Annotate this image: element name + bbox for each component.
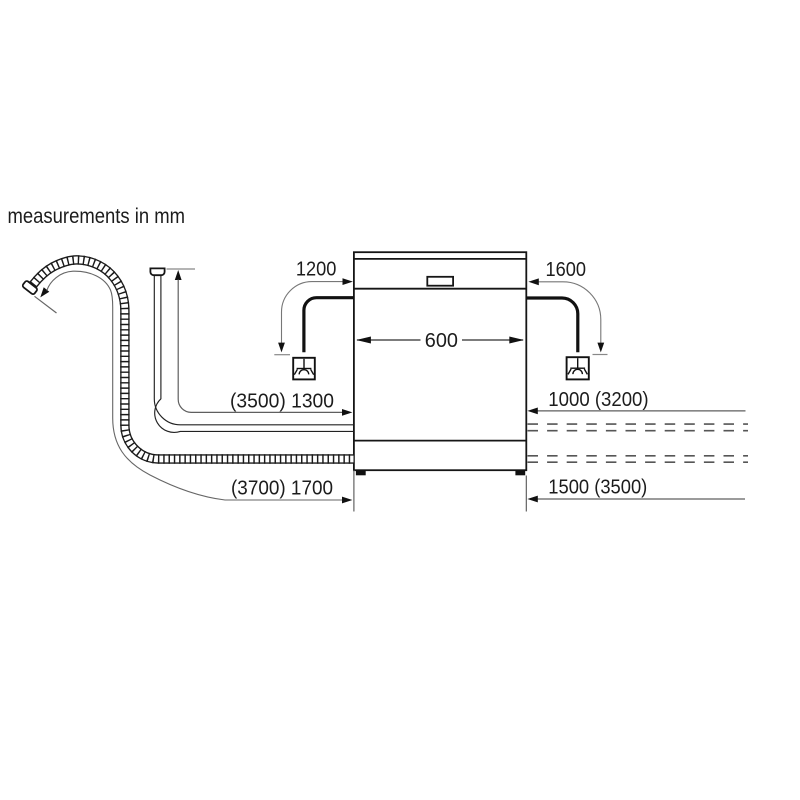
svg-text:1500 (3500): 1500 (3500) (548, 476, 647, 499)
svg-text:(3500) 1300: (3500) 1300 (230, 390, 334, 413)
svg-text:1200: 1200 (296, 258, 337, 281)
svg-text:measurements in mm: measurements in mm (8, 205, 186, 228)
svg-text:(3700) 1700: (3700) 1700 (231, 477, 333, 500)
svg-text:1000 (3200): 1000 (3200) (548, 388, 648, 411)
svg-text:1600: 1600 (546, 258, 587, 281)
svg-text:600: 600 (425, 329, 458, 352)
